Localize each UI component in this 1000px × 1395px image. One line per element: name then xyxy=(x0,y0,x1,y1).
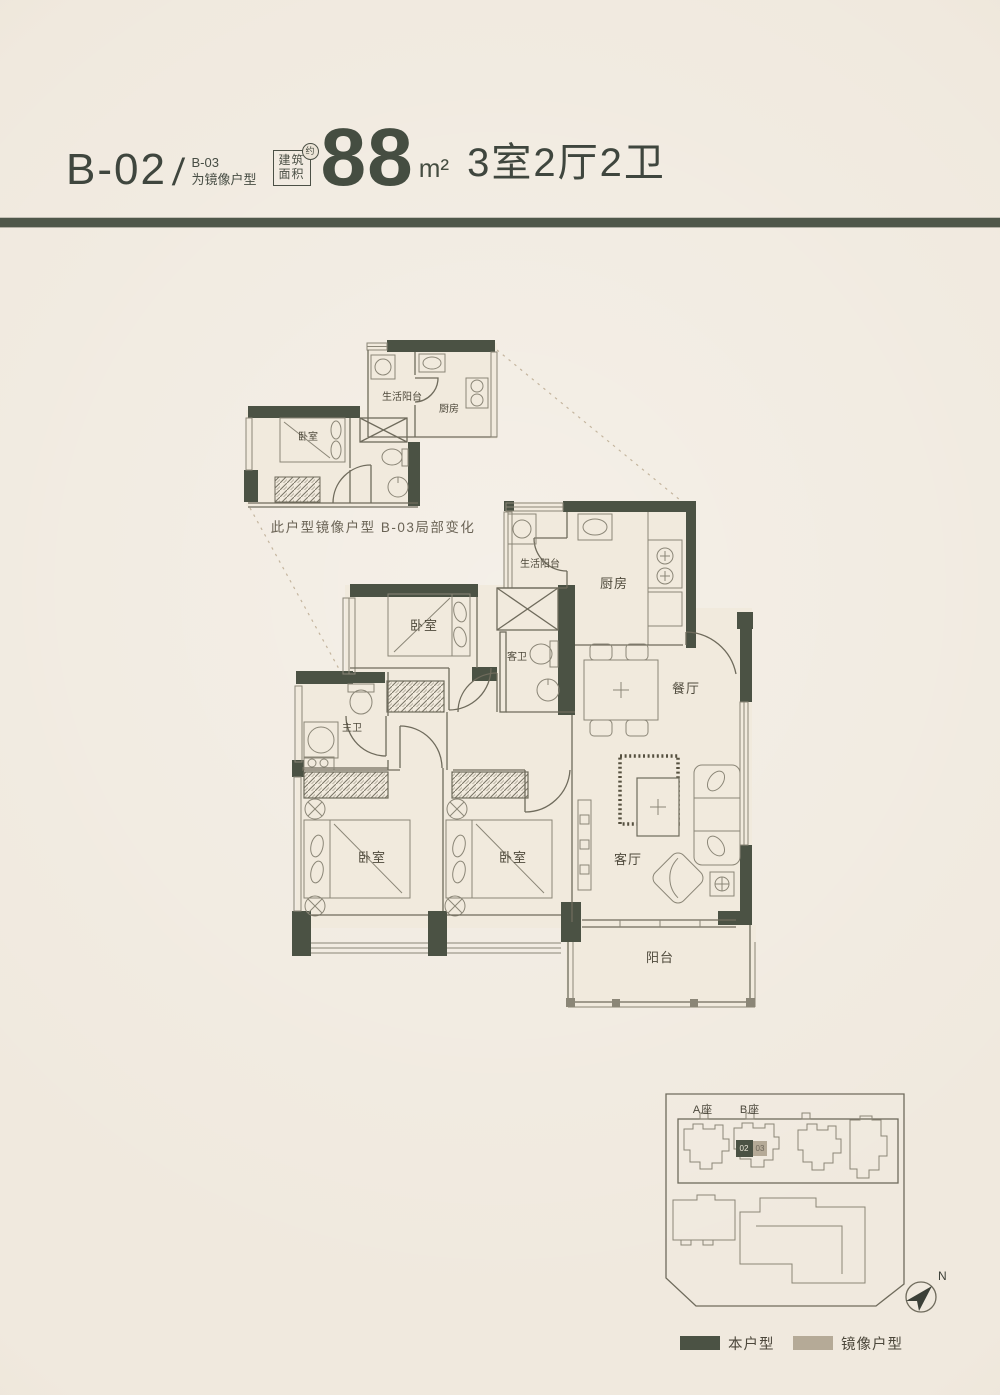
inset-room-label-bedroom: 卧室 xyxy=(298,430,318,443)
room-label-bedroom-top: 卧室 xyxy=(410,618,438,633)
compass: N xyxy=(906,1269,947,1312)
legend-this-unit-label: 本户型 xyxy=(728,1336,775,1353)
inset-room-label-kitchen: 厨房 xyxy=(439,402,459,415)
room-label-dining: 餐厅 xyxy=(672,681,700,696)
room-label-balcony: 阳台 xyxy=(646,950,674,965)
legend-mirror-unit-swatch xyxy=(793,1336,833,1350)
compass-n-label: N xyxy=(938,1269,947,1283)
room-label-service-balcony: 生活阳台 xyxy=(520,557,560,570)
room-label-master-bath: 主卫 xyxy=(342,722,362,734)
room-label-bedroom-middle: 卧室 xyxy=(499,850,527,865)
site-plan: 02 03 A座 B座 N xyxy=(666,1094,947,1312)
floorplan-page: B-02 / B-03 为镜像户型 建筑 面积 约 88 m² 3室2厅2卫 xyxy=(0,0,1000,1395)
main-floor-plan: 生活阳台 厨房 卧室 客卫 餐厅 主卫 卧室 卧室 客厅 阳台 xyxy=(292,501,756,1008)
legend-mirror-unit-label: 镜像户型 xyxy=(841,1335,903,1353)
floor-plan-canvas: 卧室 生活阳台 厨房 此户型镜像户型 B-03局部变化 xyxy=(0,0,1000,1395)
room-label-kitchen: 厨房 xyxy=(600,576,628,591)
inset-plan: 卧室 生活阳台 厨房 此户型镜像户型 B-03局部变化 xyxy=(244,340,497,535)
room-label-bedroom-left: 卧室 xyxy=(358,850,386,865)
room-label-guest-bath: 客卫 xyxy=(507,650,527,663)
inset-room-label-service-balcony: 生活阳台 xyxy=(382,390,422,403)
room-label-living: 客厅 xyxy=(614,852,642,867)
tower-a-label: A座 xyxy=(693,1102,713,1116)
legend: 本户型 镜像户型 xyxy=(680,1335,903,1353)
tower-b-label: B座 xyxy=(740,1102,760,1116)
legend-this-unit-swatch xyxy=(680,1336,720,1350)
inset-caption: 此户型镜像户型 B-03局部变化 xyxy=(271,519,476,535)
site-unit-02-number: 02 xyxy=(740,1144,749,1153)
site-unit-03-number: 03 xyxy=(756,1144,765,1153)
